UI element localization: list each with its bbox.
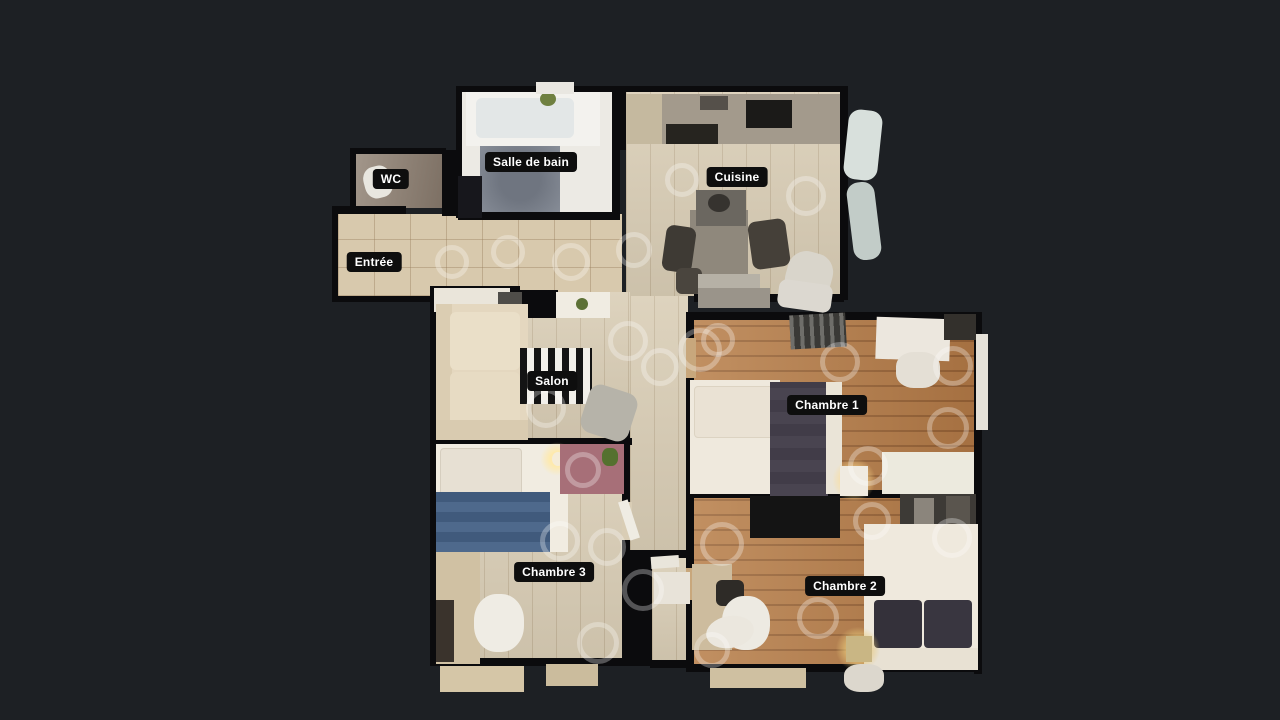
scan-point[interactable] (577, 622, 619, 664)
scan-point[interactable] (608, 321, 648, 361)
scan-point[interactable] (622, 569, 664, 611)
scan-point[interactable] (694, 632, 730, 668)
scan-point[interactable] (932, 518, 972, 558)
scan-point[interactable] (552, 243, 590, 281)
scan-point[interactable] (853, 502, 891, 540)
room-label-chambre-1[interactable]: Chambre 1 (787, 395, 867, 415)
room-label-entree[interactable]: Entrée (347, 252, 402, 272)
scan-point[interactable] (616, 232, 652, 268)
scan-point[interactable] (588, 528, 626, 566)
scan-point[interactable] (540, 521, 580, 561)
scan-point[interactable] (797, 597, 839, 639)
room-label-chambre-3[interactable]: Chambre 3 (514, 562, 594, 582)
scan-point[interactable] (701, 323, 735, 357)
floorplan[interactable]: WC Salle de bain Cuisine Entrée Salon Ch… (0, 0, 1280, 720)
scan-point[interactable] (786, 176, 826, 216)
scan-point[interactable] (526, 388, 566, 428)
room-label-wc[interactable]: WC (373, 169, 409, 189)
floorplan-viewer: WC Salle de bain Cuisine Entrée Salon Ch… (0, 0, 1280, 720)
scan-point[interactable] (700, 522, 744, 566)
scan-point[interactable] (435, 245, 469, 279)
room-label-cuisine[interactable]: Cuisine (707, 167, 768, 187)
scan-points-layer (0, 0, 1280, 720)
scan-point[interactable] (491, 235, 525, 269)
room-label-chambre-2[interactable]: Chambre 2 (805, 576, 885, 596)
scan-point[interactable] (927, 407, 969, 449)
scan-point[interactable] (848, 446, 888, 486)
scan-point[interactable] (665, 163, 699, 197)
room-label-salle-de-bain[interactable]: Salle de bain (485, 152, 577, 172)
scan-point[interactable] (933, 346, 973, 386)
scan-point[interactable] (641, 348, 679, 386)
scan-point[interactable] (820, 342, 860, 382)
room-label-salon[interactable]: Salon (527, 371, 577, 391)
scan-point[interactable] (565, 452, 601, 488)
